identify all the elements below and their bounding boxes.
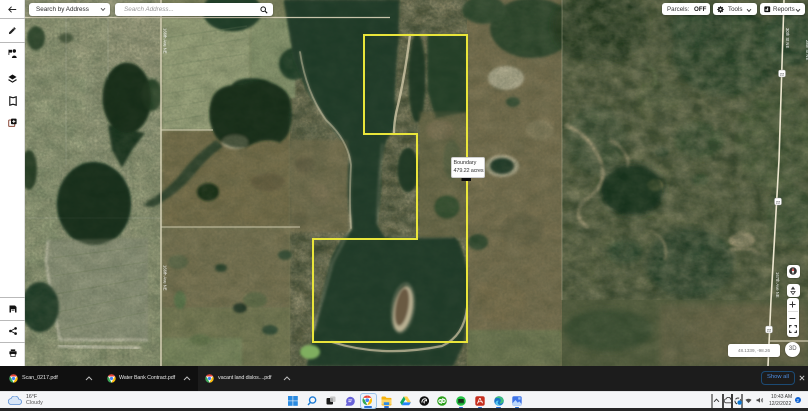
- svg-text:166th Ave NE: 166th Ave NE: [163, 265, 168, 291]
- svg-text:22: 22: [780, 71, 785, 76]
- svg-text:22: 22: [776, 199, 781, 204]
- svg-text:166th Ave NE: 166th Ave NE: [163, 28, 168, 54]
- svg-text:30th St NE: 30th St NE: [785, 28, 790, 48]
- svg-text:167th Ave NE: 167th Ave NE: [775, 272, 780, 298]
- svg-text:22: 22: [767, 327, 772, 332]
